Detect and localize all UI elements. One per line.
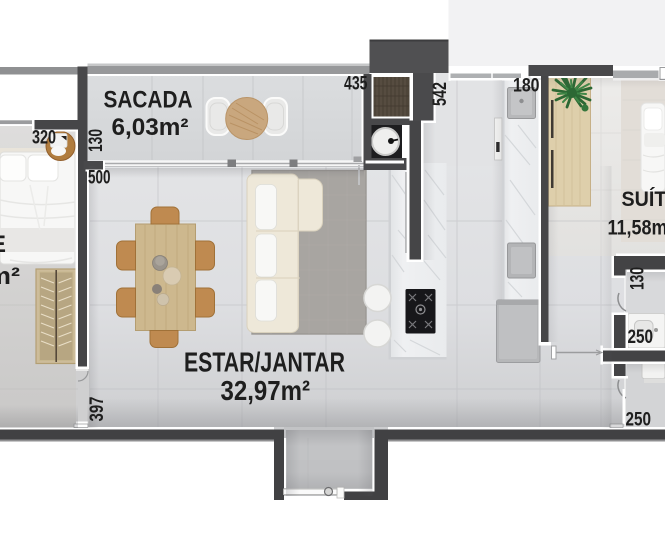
svg-text:250: 250: [628, 327, 654, 348]
svg-text:ESTAR/JANTAR: ESTAR/JANTAR: [184, 347, 345, 378]
svg-text:32,97m²: 32,97m²: [221, 375, 311, 406]
svg-text:130: 130: [628, 267, 649, 290]
svg-text:11,58m²: 11,58m²: [608, 216, 665, 240]
svg-text:320: 320: [32, 128, 56, 149]
svg-text:6,03m²: 6,03m²: [112, 114, 189, 141]
svg-text:250: 250: [626, 410, 652, 431]
svg-text:SUÍTE: SUÍTE: [622, 188, 665, 211]
svg-text:130: 130: [86, 129, 107, 152]
svg-text:m²: m²: [0, 263, 20, 290]
svg-text:SACADA: SACADA: [104, 87, 193, 114]
svg-text:180: 180: [513, 76, 540, 97]
svg-text:E: E: [0, 231, 6, 258]
svg-text:397: 397: [87, 397, 108, 422]
svg-text:435: 435: [344, 74, 368, 95]
svg-text:542: 542: [430, 82, 451, 106]
svg-text:500: 500: [88, 168, 111, 189]
